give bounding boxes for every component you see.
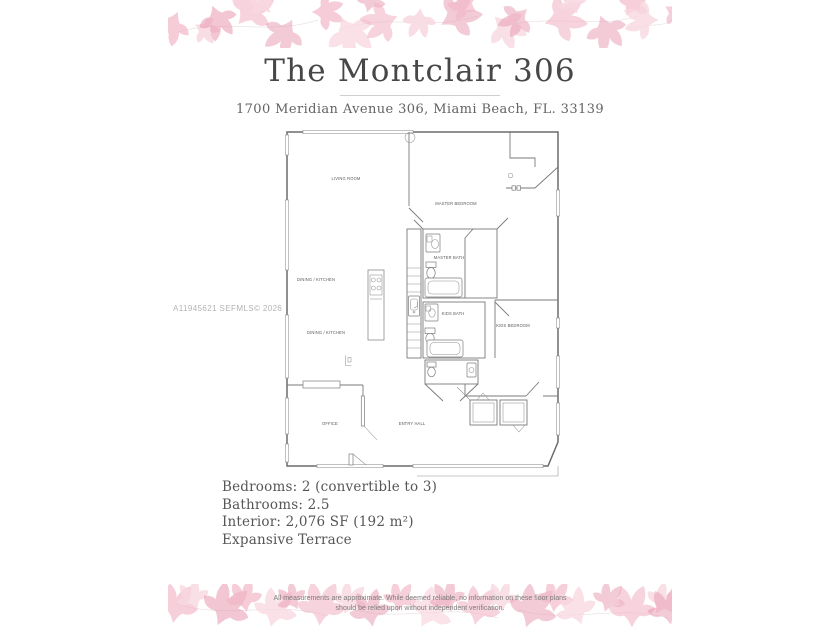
page-title: The Montclair 306 bbox=[168, 52, 672, 90]
floor-plan: LIVING ROOM MASTER BEDROOM MASTER BATH D… bbox=[273, 128, 570, 478]
leaf-icons bbox=[168, 0, 672, 48]
corridor-cabinets bbox=[407, 229, 421, 358]
master-bath-fixtures bbox=[425, 234, 462, 297]
floor-plan-flyer: The Montclair 306 1700 Meridian Avenue 3… bbox=[168, 0, 672, 630]
room-label-dining-kitchen-upper: DINING / KITCHEN bbox=[297, 277, 335, 282]
room-label-living-room: LIVING ROOM bbox=[332, 176, 361, 181]
fixture-mark bbox=[346, 356, 352, 366]
door-leaf bbox=[361, 396, 364, 426]
property-address: 1700 Meridian Avenue 306, Miami Beach, F… bbox=[168, 102, 672, 117]
powder-room bbox=[425, 360, 478, 401]
detail-interior: Interior: 2,076 SF (192 m²) bbox=[222, 514, 437, 532]
room-label-master-bath: MASTER BATH bbox=[434, 255, 464, 260]
title-divider bbox=[340, 95, 500, 96]
door-knob-icon bbox=[508, 173, 513, 178]
vanity-icon bbox=[426, 234, 440, 252]
sideboard bbox=[303, 381, 340, 388]
toilet-tank-icon bbox=[427, 362, 436, 367]
room-label-master-bedroom: MASTER BEDROOM bbox=[435, 201, 477, 206]
room-label-dining-kitchen-lower: DINING / KITCHEN bbox=[307, 330, 345, 335]
sink-icon bbox=[467, 363, 476, 377]
master-foyer-walls bbox=[506, 132, 558, 190]
interior-walls bbox=[405, 132, 423, 222]
door-swing-icon bbox=[405, 133, 415, 143]
floral-border-top bbox=[168, 0, 672, 48]
disclaimer-text: All measurements are approximate. While … bbox=[168, 594, 672, 613]
toilet-tank-icon bbox=[425, 328, 435, 334]
detail-bathrooms: Bathrooms: 2.5 bbox=[222, 497, 437, 515]
toilet-icon bbox=[428, 367, 436, 377]
windows bbox=[285, 130, 559, 467]
vanity-icon bbox=[425, 304, 438, 321]
disclaimer-line-2: should be relied upon without independen… bbox=[168, 604, 672, 614]
property-details: Bedrooms: 2 (convertible to 3) Bathrooms… bbox=[222, 479, 437, 549]
toilet-icon bbox=[427, 268, 435, 279]
detail-terrace: Expansive Terrace bbox=[222, 532, 437, 550]
room-label-kids-bedroom: KIDS BEDROOM bbox=[496, 323, 530, 328]
disclaimer-line-1: All measurements are approximate. While … bbox=[168, 594, 672, 604]
mls-watermark: A11945621 SEFMLS© 2026 bbox=[173, 304, 282, 313]
room-label-office: OFFICE bbox=[322, 421, 338, 426]
room-label-kids-bath: KIDS BATH bbox=[442, 311, 465, 316]
toilet-tank-icon bbox=[426, 262, 436, 268]
room-label-entry-hall: ENTRY HALL bbox=[399, 421, 426, 426]
kitchen-island bbox=[368, 270, 384, 340]
detail-bedrooms: Bedrooms: 2 (convertible to 3) bbox=[222, 479, 437, 497]
kids-bedroom-walls bbox=[465, 300, 558, 396]
header: The Montclair 306 1700 Meridian Avenue 3… bbox=[168, 52, 672, 117]
